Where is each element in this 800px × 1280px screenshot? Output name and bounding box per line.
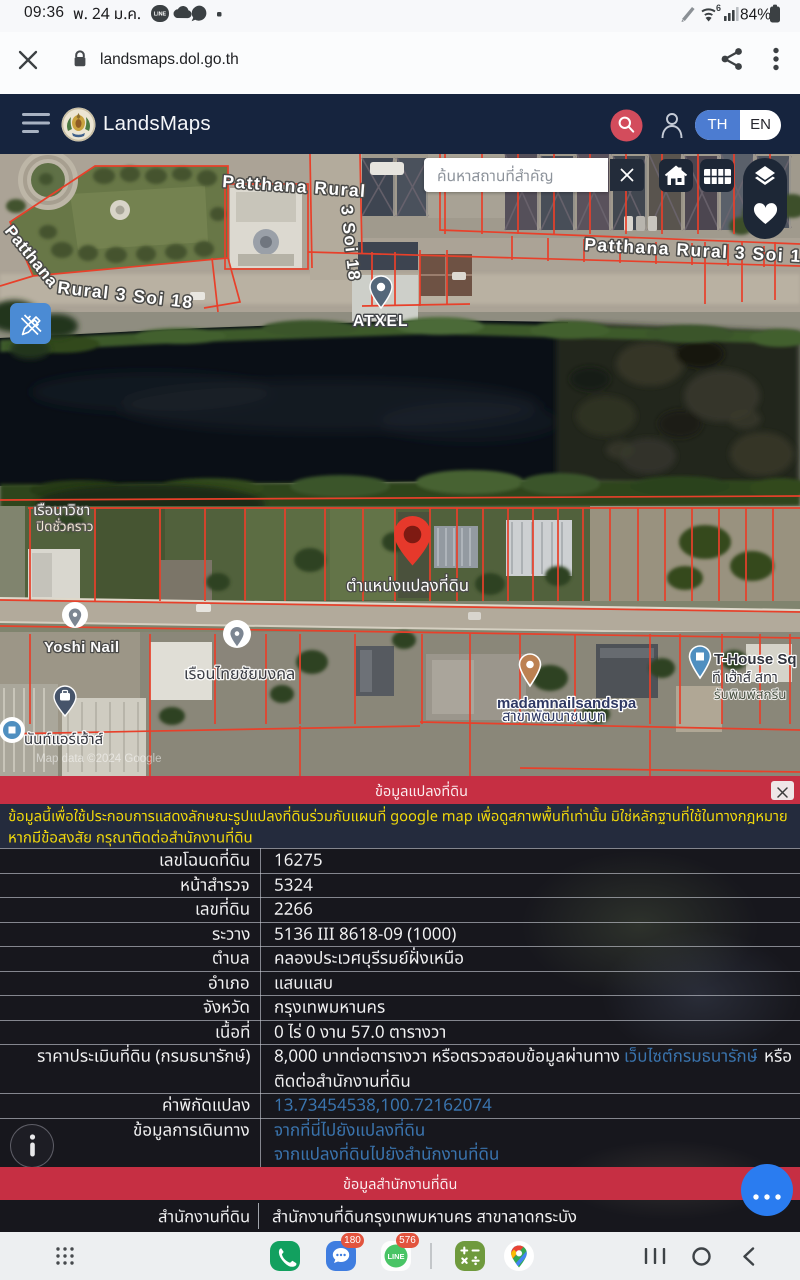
svg-text:Map data ©2024 Google: Map data ©2024 Google (36, 753, 161, 765)
svg-text:84%: 84% (740, 7, 771, 24)
svg-text:LINE: LINE (387, 1252, 404, 1261)
svg-text:6: 6 (716, 3, 721, 13)
svg-text:ATXEL: ATXEL (353, 313, 409, 330)
svg-text:LINE: LINE (154, 12, 167, 18)
svg-text:madamnailsandspa: madamnailsandspa (497, 695, 637, 712)
svg-text:Yoshi Nail: Yoshi Nail (44, 639, 119, 656)
svg-text:T-House Sq: T-House Sq (714, 651, 797, 668)
